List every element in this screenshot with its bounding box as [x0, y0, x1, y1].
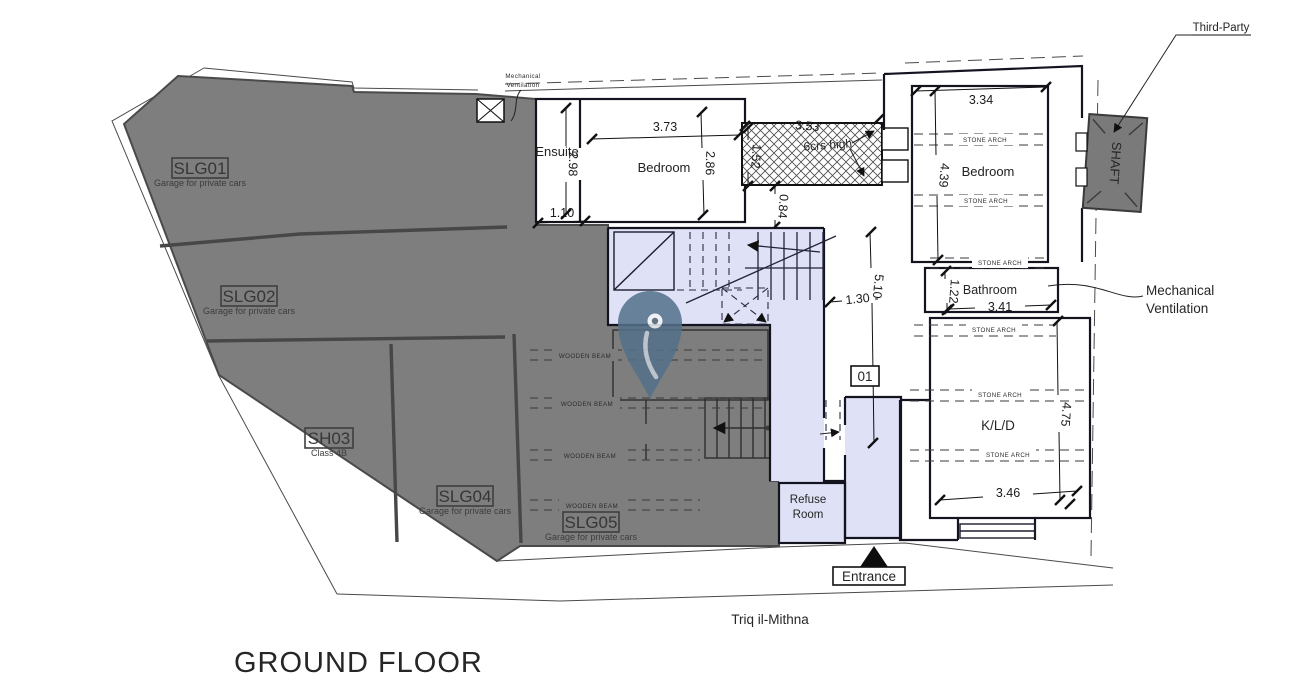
shaft-block: SHAFT — [1083, 114, 1147, 212]
unit-desc: Garage for private cars — [154, 178, 247, 188]
dim-hatch-width: 3.53 — [795, 118, 821, 134]
entrance-annotation: Entrance — [833, 546, 905, 585]
mech-vent-right-annotation: Mechanical Ventilation — [1048, 283, 1214, 316]
mech-vent-line1: Mechanical — [1146, 283, 1214, 298]
unit-code: SLG05 — [565, 513, 618, 532]
stone-arch-label: STONE ARCH — [978, 260, 1022, 267]
pin-head-dot — [652, 318, 658, 324]
dim-bedroom-right-width: 3.34 — [969, 93, 993, 107]
dim-bedroom-top-height: 2.86 — [703, 151, 718, 176]
unit-desc: Garage for private cars — [419, 506, 512, 516]
room-refuse-line2: Room — [793, 509, 824, 521]
hatched-wall-block: 3.53 6crs high 1.52 0.84 — [740, 114, 908, 232]
right-building: Bedroom Bathroom K/L/D STONE ARCH STONE … — [884, 66, 1090, 540]
dim-bathroom-height: 1.22 — [946, 279, 962, 304]
unit-code: SLG01 — [174, 159, 227, 178]
entrance-hall-area — [845, 397, 901, 538]
stone-arch-label: STONE ARCH — [972, 327, 1016, 334]
stone-arch-label: STONE ARCH — [978, 392, 1022, 399]
shaft-pillar — [1076, 168, 1087, 186]
dim-bathroom-width: 3.41 — [988, 300, 1012, 314]
unit-desc: Class 4B — [311, 448, 347, 458]
stone-arch-label: STONE ARCH — [964, 198, 1008, 205]
room-bedroom-top-label: Bedroom — [638, 160, 691, 175]
unit-01-marker: 01 — [851, 366, 879, 386]
dim-bedroom-right-height: 4.39 — [936, 163, 952, 188]
vent-shaft-icon — [477, 99, 504, 122]
dim-bedroom-top-width: 3.73 — [653, 120, 677, 134]
entrance-arrow-icon — [860, 546, 888, 567]
dim-ensuite-height: 2.98 — [566, 152, 581, 177]
floor-plan-page: WOODEN BEAM WOODEN BEAM WOODEN BEAM WOOD… — [0, 0, 1302, 689]
shaft-label: SHAFT — [1107, 141, 1125, 185]
unit-01-text: 01 — [857, 369, 872, 384]
unit-code: SH03 — [308, 429, 351, 448]
shaft-pillar — [1076, 133, 1087, 151]
mech-vent-top-line1: Mechanical — [505, 73, 540, 80]
dim-kld-height: 4.75 — [1058, 402, 1074, 427]
stone-arch-label: STONE ARCH — [986, 452, 1030, 459]
street-name: Triq il-Mithna — [731, 612, 809, 627]
unit-desc: Garage for private cars — [545, 532, 638, 542]
page-title: GROUND FLOOR — [234, 647, 483, 679]
room-bathroom-label: Bathroom — [963, 283, 1017, 297]
mech-vent-top-line2: Ventilation — [507, 82, 540, 89]
unit-code: SLG02 — [223, 287, 276, 306]
wooden-beam-label: WOODEN BEAM — [561, 401, 613, 408]
dim-hall-length: 5.10 — [870, 274, 886, 300]
third-party-annotation: Third-Party — [1114, 22, 1251, 132]
wooden-beam-label: WOODEN BEAM — [566, 503, 618, 510]
dim-hatch-offset: 0.84 — [775, 194, 791, 219]
wooden-beam-label: WOODEN BEAM — [559, 353, 611, 360]
stone-arch-label: STONE ARCH — [963, 137, 1007, 144]
dim-hatch-height: 1.52 — [748, 144, 764, 169]
floor-plan-drawing: WOODEN BEAM WOODEN BEAM WOODEN BEAM WOOD… — [0, 0, 1302, 689]
dim-kld-width: 3.46 — [996, 486, 1020, 500]
unit-sh03: SH03 Class 4B — [305, 428, 353, 458]
mech-vent-line2: Ventilation — [1146, 301, 1208, 316]
room-bedroom-right-label: Bedroom — [962, 164, 1015, 179]
unit-desc: Garage for private cars — [203, 306, 296, 316]
entrance-label: Entrance — [842, 569, 896, 584]
top-rooms: Ensuite Bedroom 3.73 2.98 2.86 1.10 — [533, 99, 745, 228]
unit-code: SLG04 — [439, 487, 492, 506]
wooden-beam-label: WOODEN BEAM — [564, 453, 616, 460]
third-party-label: Third-Party — [1193, 22, 1250, 34]
room-refuse-line1: Refuse — [790, 494, 826, 506]
dim-hall-width: 1.30 — [845, 291, 871, 307]
room-kld-label: K/L/D — [981, 418, 1015, 433]
